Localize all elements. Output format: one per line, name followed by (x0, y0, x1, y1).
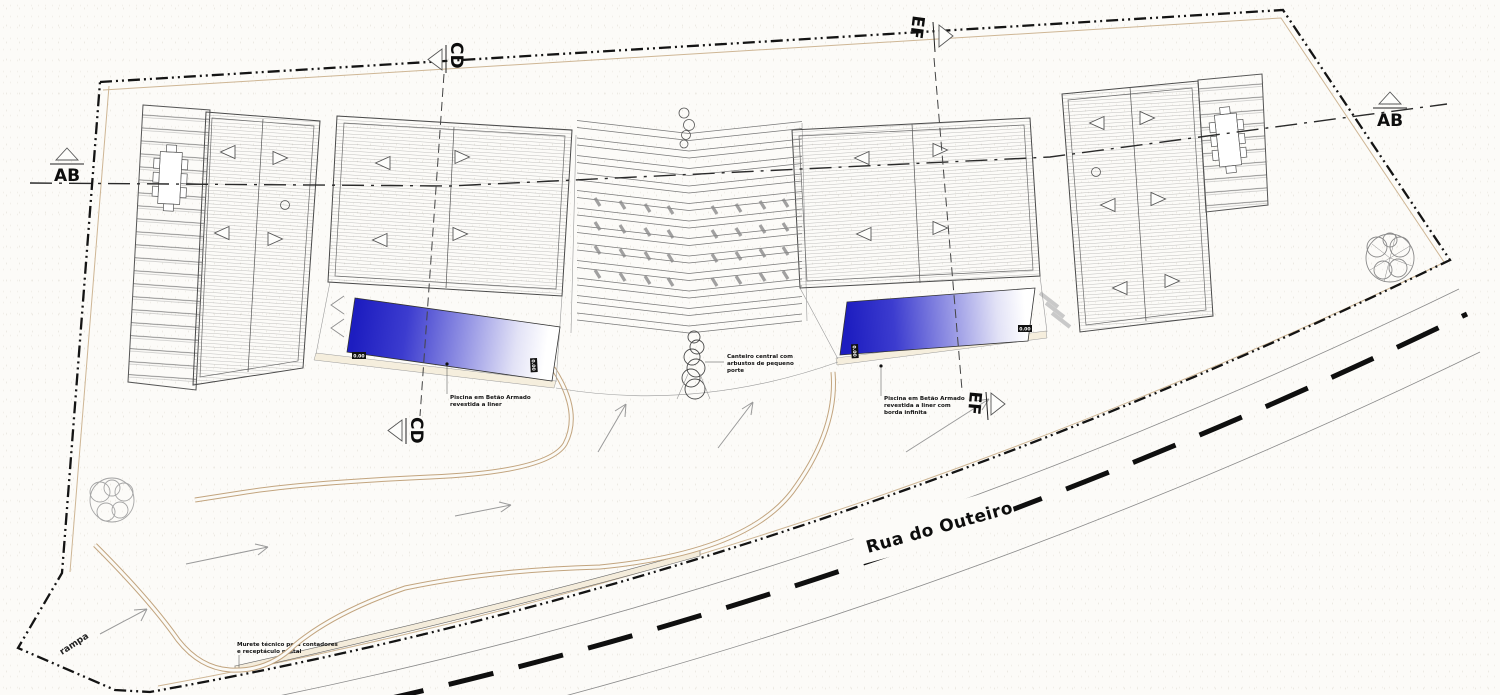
pool-2-depth-dot (879, 364, 882, 367)
pool-1: 0.00 0.00 Piscina em Betão Armado revest… (347, 298, 560, 408)
svg-text:EF: EF (905, 14, 928, 39)
svg-text:0.00: 0.00 (530, 359, 537, 371)
svg-text:revestida a liner com: revestida a liner com (884, 403, 951, 409)
section-marker-cd-top: CD (428, 42, 466, 73)
murete-label: Murete técnico para contadores (237, 641, 339, 648)
section-marker-ef-top: EF (905, 14, 953, 52)
section-arrow-icon (428, 49, 442, 70)
pool-level-badge: 0.00 (851, 344, 859, 358)
pool-2-label: Piscina em Betão Armado (884, 396, 965, 402)
roof-left-main (328, 116, 572, 296)
shrub-icon (680, 140, 688, 148)
pool-level-badge: 0.00 (352, 352, 366, 359)
shrub-icon (684, 120, 695, 131)
planter-label: Canteiro central com (727, 354, 793, 360)
svg-text:CD: CD (446, 42, 466, 69)
svg-text:revestida a liner: revestida a liner (450, 402, 502, 408)
svg-text:AB: AB (1377, 111, 1403, 131)
direction-arrow (598, 404, 626, 452)
driveway-curbs (95, 368, 833, 670)
svg-text:porte: porte (727, 368, 744, 374)
roof-right-small (1062, 81, 1213, 332)
shrub-icon (682, 331, 705, 399)
pool-1-depth-dot (445, 362, 448, 365)
section-marker-cd-bottom: CD (388, 417, 426, 444)
direction-arrow (186, 544, 268, 564)
direction-arrow (100, 609, 147, 634)
section-marker-ef-bottom: EF (963, 391, 1005, 420)
svg-text:CD: CD (406, 417, 426, 444)
shrub-icon (682, 131, 691, 140)
pool-level-badge: 0.00 (1018, 325, 1032, 332)
site-plan-sheet: Rua do Outeiro Murete técnico para conta… (0, 0, 1500, 695)
pool-level-badge: 0.00 (530, 358, 538, 372)
tree-icon (90, 478, 134, 522)
chevrons-beside-pool-1 (331, 296, 344, 337)
section-arrow-icon (1379, 92, 1401, 104)
shrub-row-top (679, 108, 695, 148)
svg-text:0.00: 0.00 (353, 353, 364, 359)
section-arrow-icon (388, 420, 402, 441)
site-plan-drawing: Rua do Outeiro Murete técnico para conta… (0, 0, 1500, 695)
pool-1-label: Piscina em Betão Armado (450, 395, 531, 401)
svg-text:0.00: 0.00 (851, 345, 858, 357)
tree-icon (1366, 233, 1414, 282)
terraced-steps (577, 121, 802, 334)
direction-arrow (718, 402, 753, 448)
shrub-icon (679, 108, 689, 118)
section-marker-ab-left: AB (50, 148, 84, 186)
svg-text:0.00: 0.00 (1019, 326, 1030, 332)
ramp-label: rampa (58, 631, 91, 657)
svg-text:EF: EF (963, 391, 985, 416)
section-arrow-icon (991, 393, 1005, 415)
roof-left-small (193, 112, 320, 385)
svg-text:arbustos de pequeno: arbustos de pequeno (727, 361, 794, 367)
svg-text:borda infinita: borda infinita (884, 410, 927, 416)
section-arrow-icon (939, 25, 953, 47)
svg-text:AB: AB (54, 166, 80, 186)
section-marker-ab-right: AB (1373, 92, 1407, 131)
roof-right-main (792, 118, 1040, 288)
deck-right (1198, 74, 1268, 212)
section-arrow-icon (56, 148, 78, 160)
direction-arrow (455, 502, 511, 516)
murete-wall: Murete técnico para contadores e receptá… (235, 550, 700, 672)
